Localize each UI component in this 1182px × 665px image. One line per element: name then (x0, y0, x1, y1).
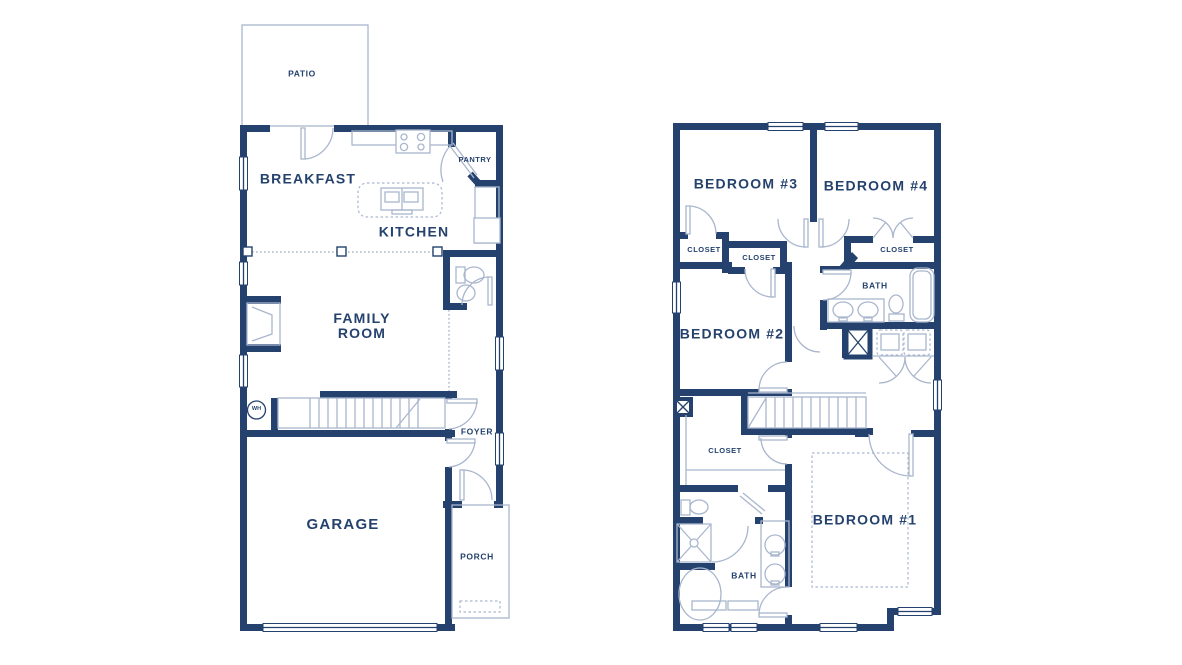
patio-door-leaf (301, 128, 305, 159)
refrigerator (474, 218, 500, 243)
closet-bedroom3-label: CLOSET (687, 246, 720, 254)
first-floor-fixtures (243, 130, 509, 618)
garage-label: GARAGE (306, 517, 379, 533)
bath-owner-label: BATH (731, 571, 756, 580)
water-heater-label: WH (252, 407, 261, 413)
pantry-label: PANTRY (459, 156, 492, 164)
bedroom-3-label: BEDROOM #3 (694, 176, 799, 191)
bedroom-1-label: BEDROOM #1 (813, 512, 918, 527)
foyer-label: FOYER (461, 427, 493, 436)
powder-sink (457, 285, 475, 301)
media-niche (247, 303, 280, 345)
owner-toilet-tank (681, 500, 690, 515)
family-room-label: FAMILY ROOM (333, 311, 390, 341)
powder-door-leaf (488, 277, 492, 305)
second-floor-windows (673, 123, 942, 632)
bedroom-2-label: BEDROOM #2 (680, 326, 785, 341)
breakfast-label: BREAKFAST (260, 171, 356, 186)
hall-bath-toilet-bowl (889, 295, 903, 313)
hall-bath-vanity (828, 299, 884, 322)
powder-toilet-bowl (464, 267, 484, 283)
kitchen-label: KITCHEN (379, 224, 450, 239)
owner-tub (679, 568, 721, 620)
first-floor-stairs (278, 398, 445, 428)
closet-bedroom4-label: CLOSET (880, 246, 913, 254)
hall-bath-sink-2 (858, 302, 878, 318)
floor-plan-page: PATIO BREAKFAST KITCHEN PANTRY FAMILY RO… (0, 0, 1182, 665)
front-door-leaf (460, 470, 464, 500)
bedroom-4-label: BEDROOM #4 (824, 178, 929, 193)
second-floor-stairs (748, 393, 866, 428)
floor-plan-drawing (0, 0, 1182, 665)
porch-label: PORCH (460, 552, 494, 561)
second-floor-plan (673, 123, 942, 632)
patio-label: PATIO (288, 69, 316, 78)
closet-hall-label: CLOSET (742, 254, 775, 262)
closet-owner-label: CLOSET (708, 447, 741, 455)
hall-bath-sink-1 (833, 302, 853, 318)
owner-toilet-bowl (690, 500, 708, 514)
second-floor-walls (673, 123, 941, 631)
hall-bath-toilet-tank (889, 314, 904, 321)
bath-hall-label: BATH (862, 281, 887, 290)
